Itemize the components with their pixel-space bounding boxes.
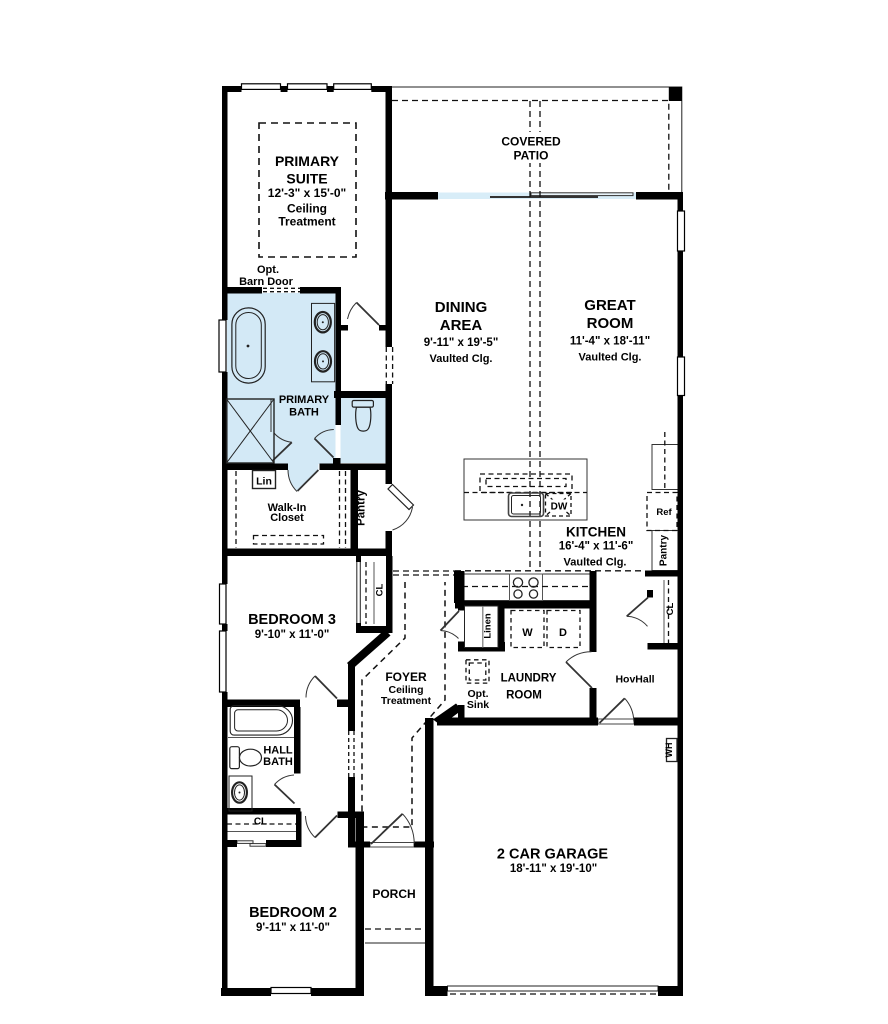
svg-text:PRIMARY: PRIMARY xyxy=(279,394,330,406)
svg-text:Treatment: Treatment xyxy=(278,215,335,229)
svg-text:WH: WH xyxy=(664,743,674,758)
svg-text:LAUNDRY: LAUNDRY xyxy=(501,673,557,685)
svg-text:GREAT: GREAT xyxy=(584,297,635,314)
svg-text:DW: DW xyxy=(551,502,568,513)
svg-text:Pantry: Pantry xyxy=(356,490,368,526)
svg-text:Vaulted Clg.: Vaulted Clg. xyxy=(579,352,642,364)
svg-text:Linen: Linen xyxy=(483,613,494,639)
svg-text:Vaulted Clg.: Vaulted Clg. xyxy=(430,353,493,365)
svg-text:Opt.: Opt. xyxy=(257,264,279,276)
svg-text:Barn Door: Barn Door xyxy=(239,276,294,288)
svg-text:CL: CL xyxy=(254,817,267,828)
svg-text:16'-4" x 11'-6": 16'-4" x 11'-6" xyxy=(559,541,634,553)
svg-text:PATIO: PATIO xyxy=(514,149,549,163)
svg-text:Sink: Sink xyxy=(467,699,489,711)
svg-text:CL: CL xyxy=(665,602,676,615)
svg-text:Ceiling: Ceiling xyxy=(287,202,327,216)
svg-text:Lin: Lin xyxy=(256,476,272,488)
svg-text:9'-11" x 19'-5": 9'-11" x 19'-5" xyxy=(424,337,499,349)
svg-text:D: D xyxy=(559,627,567,639)
svg-text:12'-3" x 15'-0": 12'-3" x 15'-0" xyxy=(268,186,346,200)
svg-text:BATH: BATH xyxy=(289,407,319,419)
svg-text:AREA: AREA xyxy=(440,317,483,334)
svg-text:Ref: Ref xyxy=(656,507,672,518)
svg-text:Closet: Closet xyxy=(270,512,304,524)
svg-text:9'-10" x 11'-0": 9'-10" x 11'-0" xyxy=(255,629,330,641)
svg-text:CL: CL xyxy=(375,583,386,596)
svg-text:18'-11" x 19'-10": 18'-11" x 19'-10" xyxy=(510,863,597,875)
svg-text:COVERED: COVERED xyxy=(501,135,561,149)
svg-text:HALL: HALL xyxy=(263,745,293,757)
svg-text:9'-11" x 11'-0": 9'-11" x 11'-0" xyxy=(256,922,330,934)
svg-text:Treatment: Treatment xyxy=(381,695,432,707)
svg-text:BATH: BATH xyxy=(263,756,293,768)
svg-text:W: W xyxy=(522,627,533,639)
svg-text:FOYER: FOYER xyxy=(385,670,427,684)
svg-text:PORCH: PORCH xyxy=(372,887,415,901)
svg-text:ROOM: ROOM xyxy=(506,690,542,702)
svg-text:BEDROOM 3: BEDROOM 3 xyxy=(248,612,336,628)
svg-text:PRIMARY: PRIMARY xyxy=(275,153,340,169)
svg-text:Pantry: Pantry xyxy=(659,535,670,567)
svg-text:BEDROOM 2: BEDROOM 2 xyxy=(249,905,337,921)
svg-text:SUITE: SUITE xyxy=(286,171,327,187)
svg-text:DINING: DINING xyxy=(435,299,488,316)
svg-text:HovHall: HovHall xyxy=(615,674,654,686)
svg-text:ROOM: ROOM xyxy=(587,315,634,332)
svg-text:Vaulted Clg.: Vaulted Clg. xyxy=(564,557,627,569)
svg-text:11'-4" x 18'-11": 11'-4" x 18'-11" xyxy=(570,336,650,348)
svg-text:2 CAR GARAGE: 2 CAR GARAGE xyxy=(497,847,609,863)
svg-text:KITCHEN: KITCHEN xyxy=(566,525,626,540)
